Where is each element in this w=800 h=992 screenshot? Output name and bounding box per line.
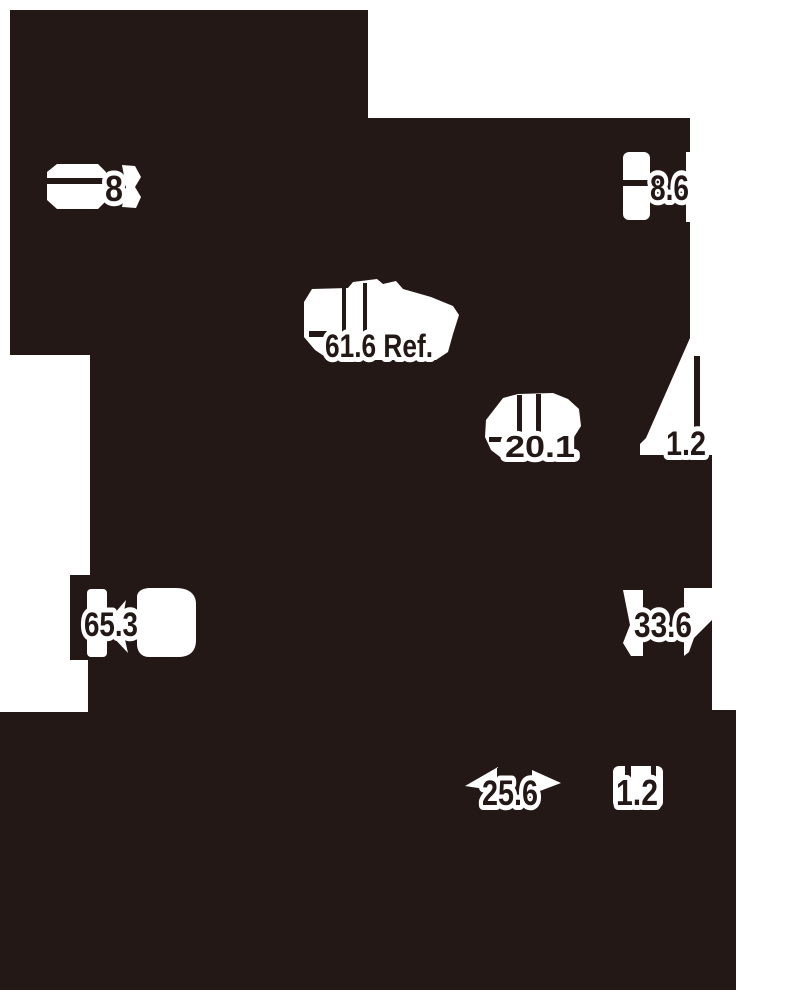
dimension-label-1-2-upper: 1.2 (666, 425, 706, 463)
dimension-label-25-6: 25.6 (482, 774, 538, 813)
dimension-label-8-6: 8.6 (650, 169, 689, 208)
dimension-callout-1-2-lower: 1.2 (613, 766, 663, 813)
dim-65-3-halo-blob (137, 588, 196, 657)
dimension-label-1-2-lower: 1.2 (616, 772, 658, 813)
dimension-label-61-6-ref: 61.6 Ref. (325, 328, 433, 364)
dim-20-1-dimension-line (489, 437, 506, 442)
dimension-label-33-6: 33.6 (634, 606, 692, 645)
dimension-callout-20-1: 20.1 (485, 393, 581, 464)
dimension-callout-65-3: 65.3 (84, 588, 196, 657)
dim-8-leader-box (47, 164, 106, 209)
dimension-callout-8: 8 (47, 164, 141, 209)
dimension-label-8: 8 (105, 168, 123, 209)
part-drawing-canvas: 8 8.6 61.6 Ref. 20.1 (0, 0, 800, 992)
dim-8-dimension-line (47, 178, 106, 184)
technical-drawing-page: 8 8.6 61.6 Ref. 20.1 (0, 0, 800, 992)
dim-8-6-dimension-line (623, 180, 652, 186)
dimension-label-65-3: 65.3 (84, 606, 138, 644)
dimension-label-20-1: 20.1 (505, 429, 575, 464)
